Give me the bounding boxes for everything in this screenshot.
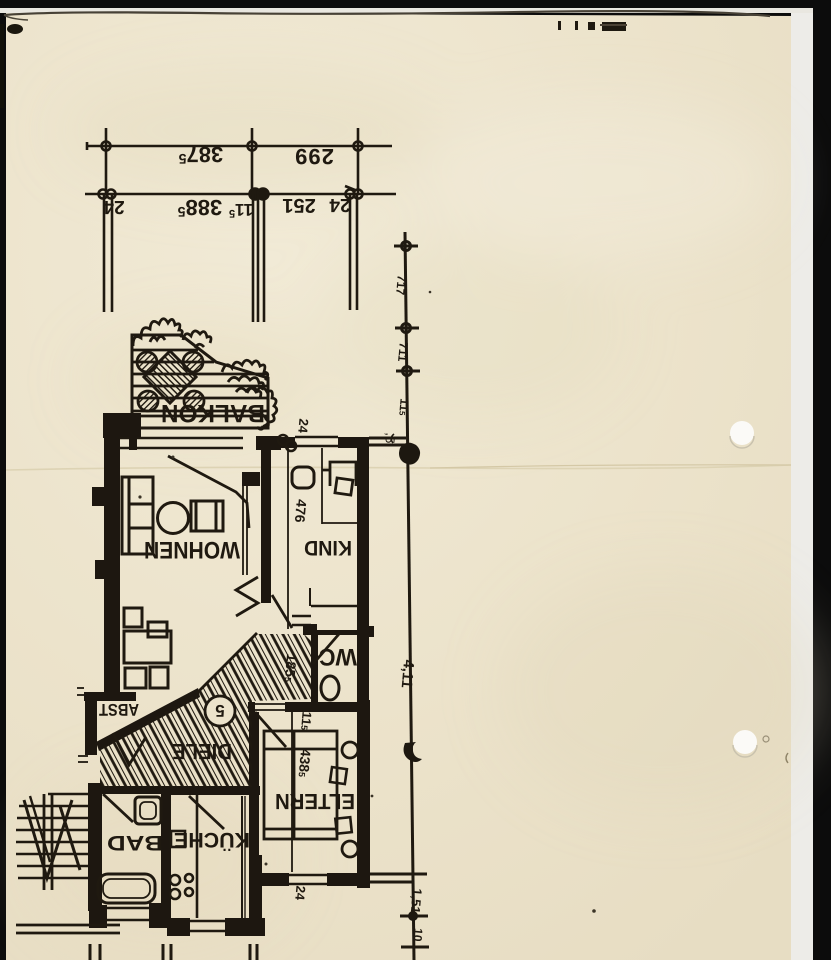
- svg-text:KIND: KIND: [304, 536, 352, 559]
- svg-text:1,51: 1,51: [408, 888, 425, 915]
- svg-text:WOHNEN: WOHNEN: [144, 536, 240, 563]
- svg-text:10: 10: [410, 928, 425, 943]
- svg-text:24: 24: [329, 194, 351, 215]
- svg-text:ELTERN: ELTERN: [275, 789, 355, 814]
- svg-text:24: 24: [103, 196, 125, 217]
- svg-text:24: 24: [292, 885, 308, 901]
- svg-text:251: 251: [282, 194, 315, 216]
- svg-text:BAD: BAD: [107, 831, 163, 854]
- svg-text:476: 476: [292, 499, 310, 524]
- svg-text:DIELE: DIELE: [172, 739, 232, 764]
- svg-text:711: 711: [395, 342, 411, 363]
- svg-text:BALKON: BALKON: [161, 399, 265, 427]
- svg-text:5: 5: [215, 701, 224, 720]
- svg-text:24: 24: [295, 418, 311, 434]
- svg-text:299: 299: [294, 144, 334, 169]
- svg-text:WC: WC: [319, 643, 357, 670]
- svg-text:ABST: ABST: [98, 700, 139, 719]
- svg-text:717: 717: [393, 274, 409, 295]
- svg-text:4,11: 4,11: [398, 659, 417, 689]
